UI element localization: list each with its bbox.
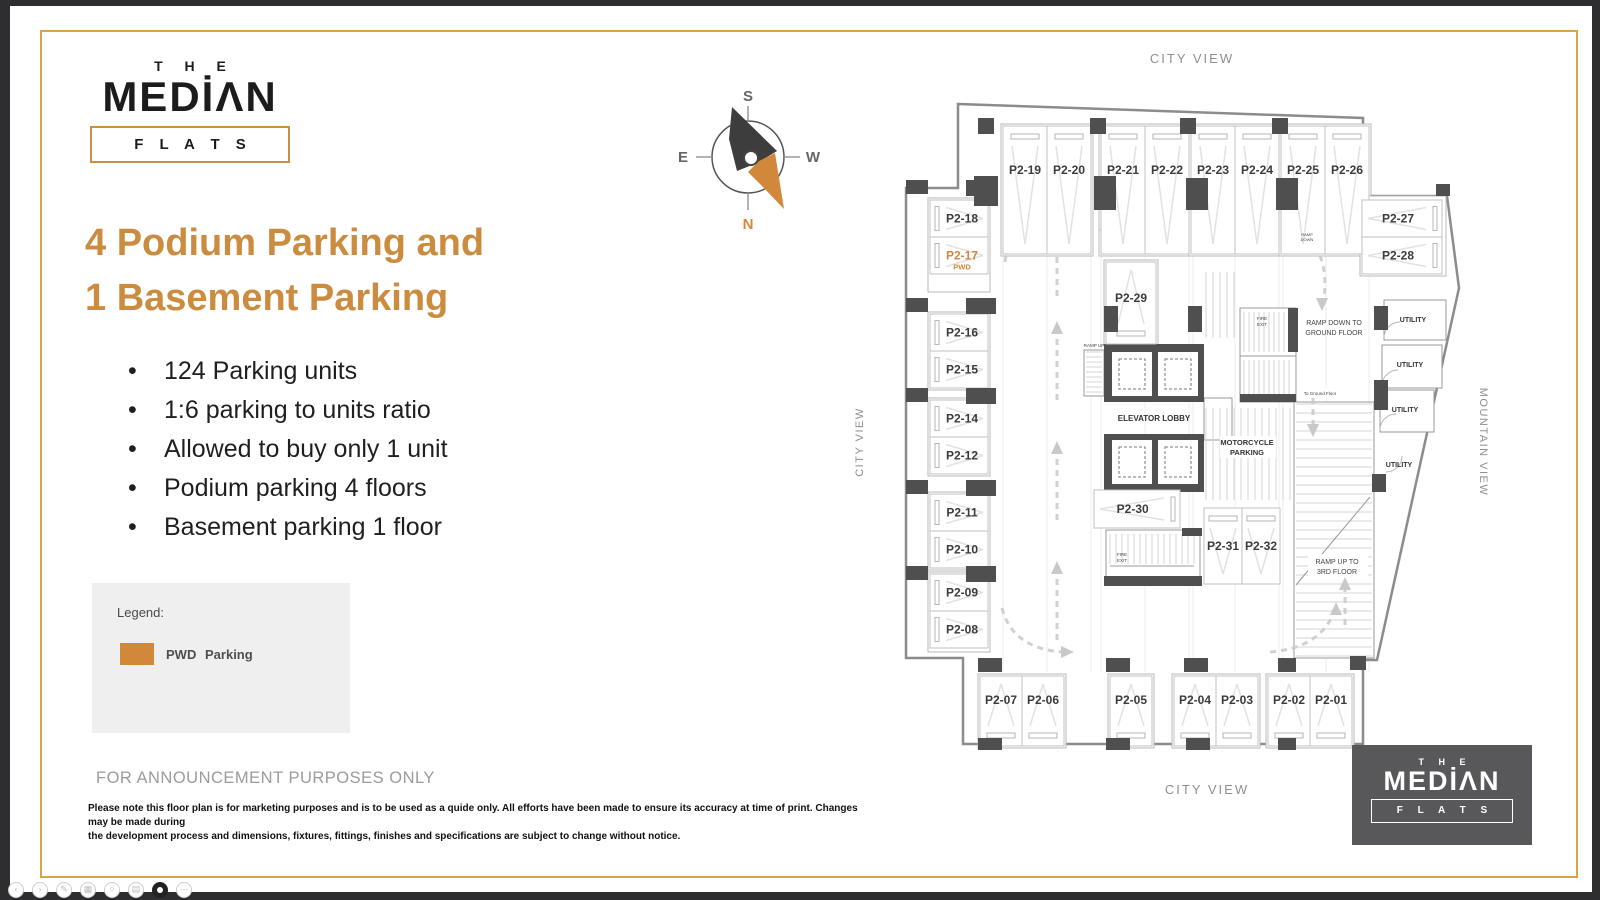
compass-label-e: E <box>678 149 688 166</box>
list-item-label: Podium parking 4 floors <box>164 469 427 508</box>
column <box>1276 178 1298 210</box>
plan-annotation: FIRE <box>1257 316 1267 321</box>
stall-label: P2-23 <box>1197 163 1229 177</box>
stall-label: P2-27 <box>1382 212 1414 226</box>
column <box>1186 738 1210 750</box>
plan-annotation: UTILITY <box>1397 362 1424 369</box>
arrowhead-icon <box>1051 321 1063 334</box>
list-item-label: Basement parking 1 floor <box>164 508 442 547</box>
stall-label: P2-04 <box>1179 693 1211 707</box>
wall-fill <box>1182 528 1202 536</box>
grid-button[interactable]: ▦ <box>80 882 96 898</box>
parking-stall-p2-03: P2-03 <box>1216 676 1258 746</box>
viewer-toolbar: ‹›✎▦○▤⋯ <box>8 882 192 898</box>
plan-annotation: MOUNTAIN VIEW <box>1477 388 1489 497</box>
wall-fill <box>1104 576 1202 586</box>
plan-annotation: To Ground Floor <box>1304 391 1337 396</box>
plan-annotation: UTILITY <box>1386 462 1413 469</box>
wall-fill <box>1288 308 1298 352</box>
parking-stall-p2-27: P2-27 <box>1362 200 1442 237</box>
stall-label: P2-21 <box>1107 163 1139 177</box>
brand-logo-median: MEDİΛN <box>90 74 290 120</box>
column <box>978 658 1002 672</box>
list-item-label: 1:6 parking to units ratio <box>164 391 431 430</box>
bullet-icon: • <box>128 391 164 430</box>
more-button[interactable]: ⋯ <box>176 882 192 898</box>
column <box>1278 738 1296 750</box>
plan-annotation: UTILITY <box>1400 317 1427 324</box>
parking-stall-p2-28: P2-28 <box>1362 237 1442 274</box>
stall-label: P2-02 <box>1273 693 1305 707</box>
column <box>1184 658 1208 672</box>
plan-annotation: RAMP UP <box>1084 343 1104 348</box>
drive-path <box>1002 608 1062 652</box>
plan-annotation: DOWN <box>1301 237 1314 242</box>
page-title: 4 Podium Parking and 1 Basement Parking <box>85 216 484 326</box>
column <box>966 566 996 582</box>
forward-button[interactable]: › <box>32 882 48 898</box>
arrowhead-icon <box>1051 441 1063 454</box>
stall-label: P2-11 <box>946 506 978 520</box>
back-button[interactable]: ‹ <box>8 882 24 898</box>
parking-stall-p2-15: P2-15 <box>930 351 988 388</box>
compass-label-n: N <box>743 216 754 233</box>
column <box>966 480 996 496</box>
legend-title: Legend: <box>117 605 164 620</box>
plan-annotation: MOTORCYCLE <box>1220 438 1273 447</box>
footer-logo-median: MEDİΛN <box>1352 767 1532 795</box>
parking-stall-p2-07: P2-07 <box>980 676 1022 746</box>
pwd-label: PWD <box>953 263 971 272</box>
edit-button[interactable]: ✎ <box>56 882 72 898</box>
record-button[interactable] <box>152 882 168 898</box>
stall-label: P2-20 <box>1053 163 1085 177</box>
pwd-color-swatch <box>120 643 154 665</box>
disclaimer-text: Please note this floor plan is for marke… <box>88 802 878 844</box>
footer-logo-flats: F L A T S <box>1371 799 1513 823</box>
parking-stall-p2-32: P2-32 <box>1242 508 1280 584</box>
column <box>1186 178 1208 210</box>
plan-annotation: EXIT <box>1257 322 1267 327</box>
plan-annotation: UTILITY <box>1392 407 1419 414</box>
bullet-icon: • <box>128 352 164 391</box>
parking-stall-p2-08: P2-08 <box>930 611 988 648</box>
stall-label: P2-05 <box>1115 693 1147 707</box>
stall-label: P2-08 <box>946 623 978 637</box>
room-outline <box>1204 398 1232 440</box>
column <box>1106 738 1130 750</box>
announcement-note: FOR ANNOUNCEMENT PURPOSES ONLY <box>96 769 435 788</box>
disclaimer-line2: the development process and dimensions, … <box>88 830 878 844</box>
list-item-label: 124 Parking units <box>164 352 357 391</box>
compass-label-s: S <box>743 88 753 105</box>
list-item: •124 Parking units <box>128 352 448 391</box>
plan-annotation: CITY VIEW <box>1165 782 1249 797</box>
parking-stall-p2-10: P2-10 <box>930 531 988 568</box>
parking-stall-p2-04: P2-04 <box>1174 676 1216 746</box>
stall-label: P2-19 <box>1009 163 1041 177</box>
column <box>1106 658 1130 672</box>
stall-label: P2-17 <box>946 249 978 263</box>
parking-stall-p2-22: P2-22 <box>1145 126 1189 254</box>
plan-annotation: FIRE <box>1117 552 1127 557</box>
wall-fill <box>1240 394 1296 402</box>
stall-label: P2-31 <box>1207 539 1239 553</box>
page-title-line2: 1 Basement Parking <box>85 271 484 326</box>
column <box>906 180 928 194</box>
column <box>978 738 1002 750</box>
parking-stall-p2-31: P2-31 <box>1204 508 1242 584</box>
stall-label: P2-01 <box>1315 693 1347 707</box>
stall-label: P2-14 <box>946 412 978 426</box>
document-viewer: { "logo": {"the": "T H E", "median": "ME… <box>0 0 1600 900</box>
compass-label-w: W <box>806 149 821 166</box>
arrowhead-icon <box>1051 561 1063 574</box>
column <box>1094 176 1116 210</box>
list-item: •Podium parking 4 floors <box>128 469 448 508</box>
parking-stall-p2-24: P2-24 <box>1235 126 1279 254</box>
stall-label: P2-07 <box>985 693 1017 707</box>
stall-label: P2-29 <box>1115 291 1147 305</box>
parking-stall-p2-19: P2-19 <box>1003 126 1047 254</box>
stall-label: P2-18 <box>946 212 978 226</box>
stall-label: P2-26 <box>1331 163 1363 177</box>
column <box>1188 306 1202 332</box>
parking-stall-p2-05: P2-05 <box>1110 676 1152 746</box>
column <box>966 388 996 404</box>
column <box>906 480 928 494</box>
footer-brand-logo: T H E MEDİΛN F L A T S <box>1352 745 1532 845</box>
plan-annotation: GROUND FLOOR <box>1305 330 1362 337</box>
brand-logo-flats: F L A T S <box>90 126 290 163</box>
stall-label: P2-24 <box>1241 163 1273 177</box>
feature-list: •124 Parking units •1:6 parking to units… <box>128 352 448 547</box>
plan-annotation: 3RD FLOOR <box>1317 569 1357 576</box>
legend-desc: Parking <box>205 647 253 662</box>
plan-annotation: ELEVATOR LOBBY <box>1118 414 1191 423</box>
column <box>1180 118 1196 134</box>
plan-annotation: RAMP UP TO <box>1315 559 1359 566</box>
parking-stall-p2-12: P2-12 <box>930 437 988 474</box>
disclaimer-line1: Please note this floor plan is for marke… <box>88 802 878 830</box>
page-title-line1: 4 Podium Parking and <box>85 216 484 271</box>
parking-stall-p2-30: P2-30 <box>1094 490 1180 528</box>
plan-annotation: RAMP DOWN TO <box>1306 320 1362 327</box>
brand-logo-the: T H E <box>90 58 290 74</box>
column <box>906 298 928 312</box>
column <box>1350 656 1366 670</box>
column <box>1374 380 1388 410</box>
compass-hub <box>744 151 758 165</box>
column <box>966 180 992 196</box>
stall-label: P2-15 <box>946 363 978 377</box>
list-item: •Allowed to buy only 1 unit <box>128 430 448 469</box>
parking-stall-p2-11: P2-11 <box>930 494 988 531</box>
parking-stall-p2-16: P2-16 <box>930 314 988 351</box>
parking-stall-p2-14: P2-14 <box>930 400 988 437</box>
list-item-label: Allowed to buy only 1 unit <box>164 430 448 469</box>
column <box>1436 184 1450 196</box>
column <box>1374 306 1388 330</box>
stall-label: P2-30 <box>1117 502 1149 516</box>
legend-term: PWD <box>166 647 196 662</box>
column <box>1372 474 1386 492</box>
stall-label: P2-16 <box>946 326 978 340</box>
print-button[interactable]: ▤ <box>128 882 144 898</box>
floor-plan: P2-19P2-20P2-21P2-22P2-23P2-24P2-25P2-26… <box>850 40 1560 810</box>
plan-annotation: CITY VIEW <box>854 407 866 477</box>
bullet-icon: • <box>128 430 164 469</box>
brand-logo: T H E MEDİΛN F L A T S <box>90 58 290 163</box>
column <box>1272 118 1288 134</box>
column <box>906 388 928 402</box>
compass-rose: S E W N <box>660 75 835 245</box>
zoom-button[interactable]: ○ <box>104 882 120 898</box>
room-outline <box>1106 530 1200 584</box>
stall-label: P2-25 <box>1287 163 1319 177</box>
stall-label: P2-10 <box>946 543 978 557</box>
stall-label: P2-03 <box>1221 693 1253 707</box>
list-item: •Basement parking 1 floor <box>128 508 448 547</box>
plan-annotation: CITY VIEW <box>1150 51 1234 66</box>
stall-label: P2-12 <box>946 449 978 463</box>
column <box>966 298 996 314</box>
parking-stall-p2-01: P2-01 <box>1310 676 1352 746</box>
legend: Legend: PWD Parking <box>92 583 350 733</box>
parking-stall-p2-20: P2-20 <box>1047 126 1091 254</box>
room-outline <box>1240 308 1296 402</box>
plan-annotation: EXIT <box>1117 558 1127 563</box>
stall-label: P2-09 <box>946 586 978 600</box>
stall-label: P2-32 <box>1245 539 1277 553</box>
stall-label: P2-06 <box>1027 693 1059 707</box>
column <box>906 566 928 580</box>
list-item: •1:6 parking to units ratio <box>128 391 448 430</box>
stall-label: P2-28 <box>1382 249 1414 263</box>
parking-stall-p2-06: P2-06 <box>1022 676 1064 746</box>
column <box>1278 658 1296 672</box>
column <box>1104 306 1118 332</box>
stall-label: P2-22 <box>1151 163 1183 177</box>
column <box>1090 118 1106 134</box>
arrowhead-icon <box>1061 646 1074 658</box>
plan-annotation: PARKING <box>1230 448 1264 457</box>
bullet-icon: • <box>128 508 164 547</box>
parking-stall-p2-17: P2-17PWD <box>930 237 988 274</box>
parking-stall-p2-02: P2-02 <box>1268 676 1310 746</box>
column <box>978 118 994 134</box>
bullet-icon: • <box>128 469 164 508</box>
